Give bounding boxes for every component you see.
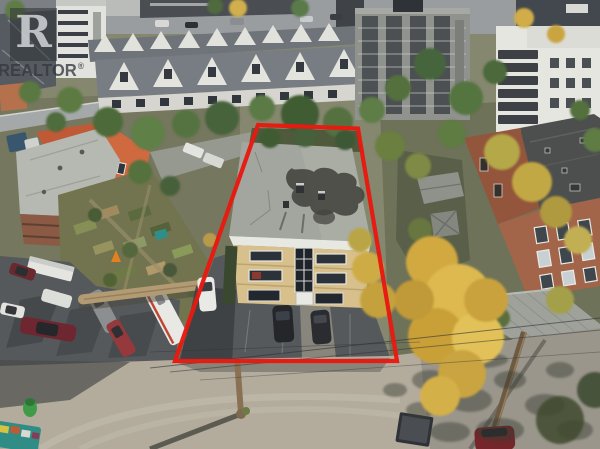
entrance-door xyxy=(296,292,313,305)
red-curtain xyxy=(252,272,261,279)
black-car-2 xyxy=(310,309,332,345)
realtor-watermark: R REALTOR® xyxy=(0,0,110,90)
black-car-1 xyxy=(272,305,295,343)
realtor-brand-text: REALTOR xyxy=(0,60,77,80)
green-bag-top xyxy=(25,398,35,406)
aerial-photo: R REALTOR® xyxy=(0,0,600,449)
realtor-logo-box: R xyxy=(10,8,57,61)
registered-trademark-symbol: ® xyxy=(78,61,84,71)
realtor-logo-r: R xyxy=(15,11,52,55)
brick-building-windows xyxy=(532,219,599,289)
highrise-windows xyxy=(550,58,591,108)
stairwell-windows xyxy=(295,248,313,292)
realtor-wordmark: REALTOR® xyxy=(0,60,84,81)
gazebo xyxy=(430,210,459,237)
